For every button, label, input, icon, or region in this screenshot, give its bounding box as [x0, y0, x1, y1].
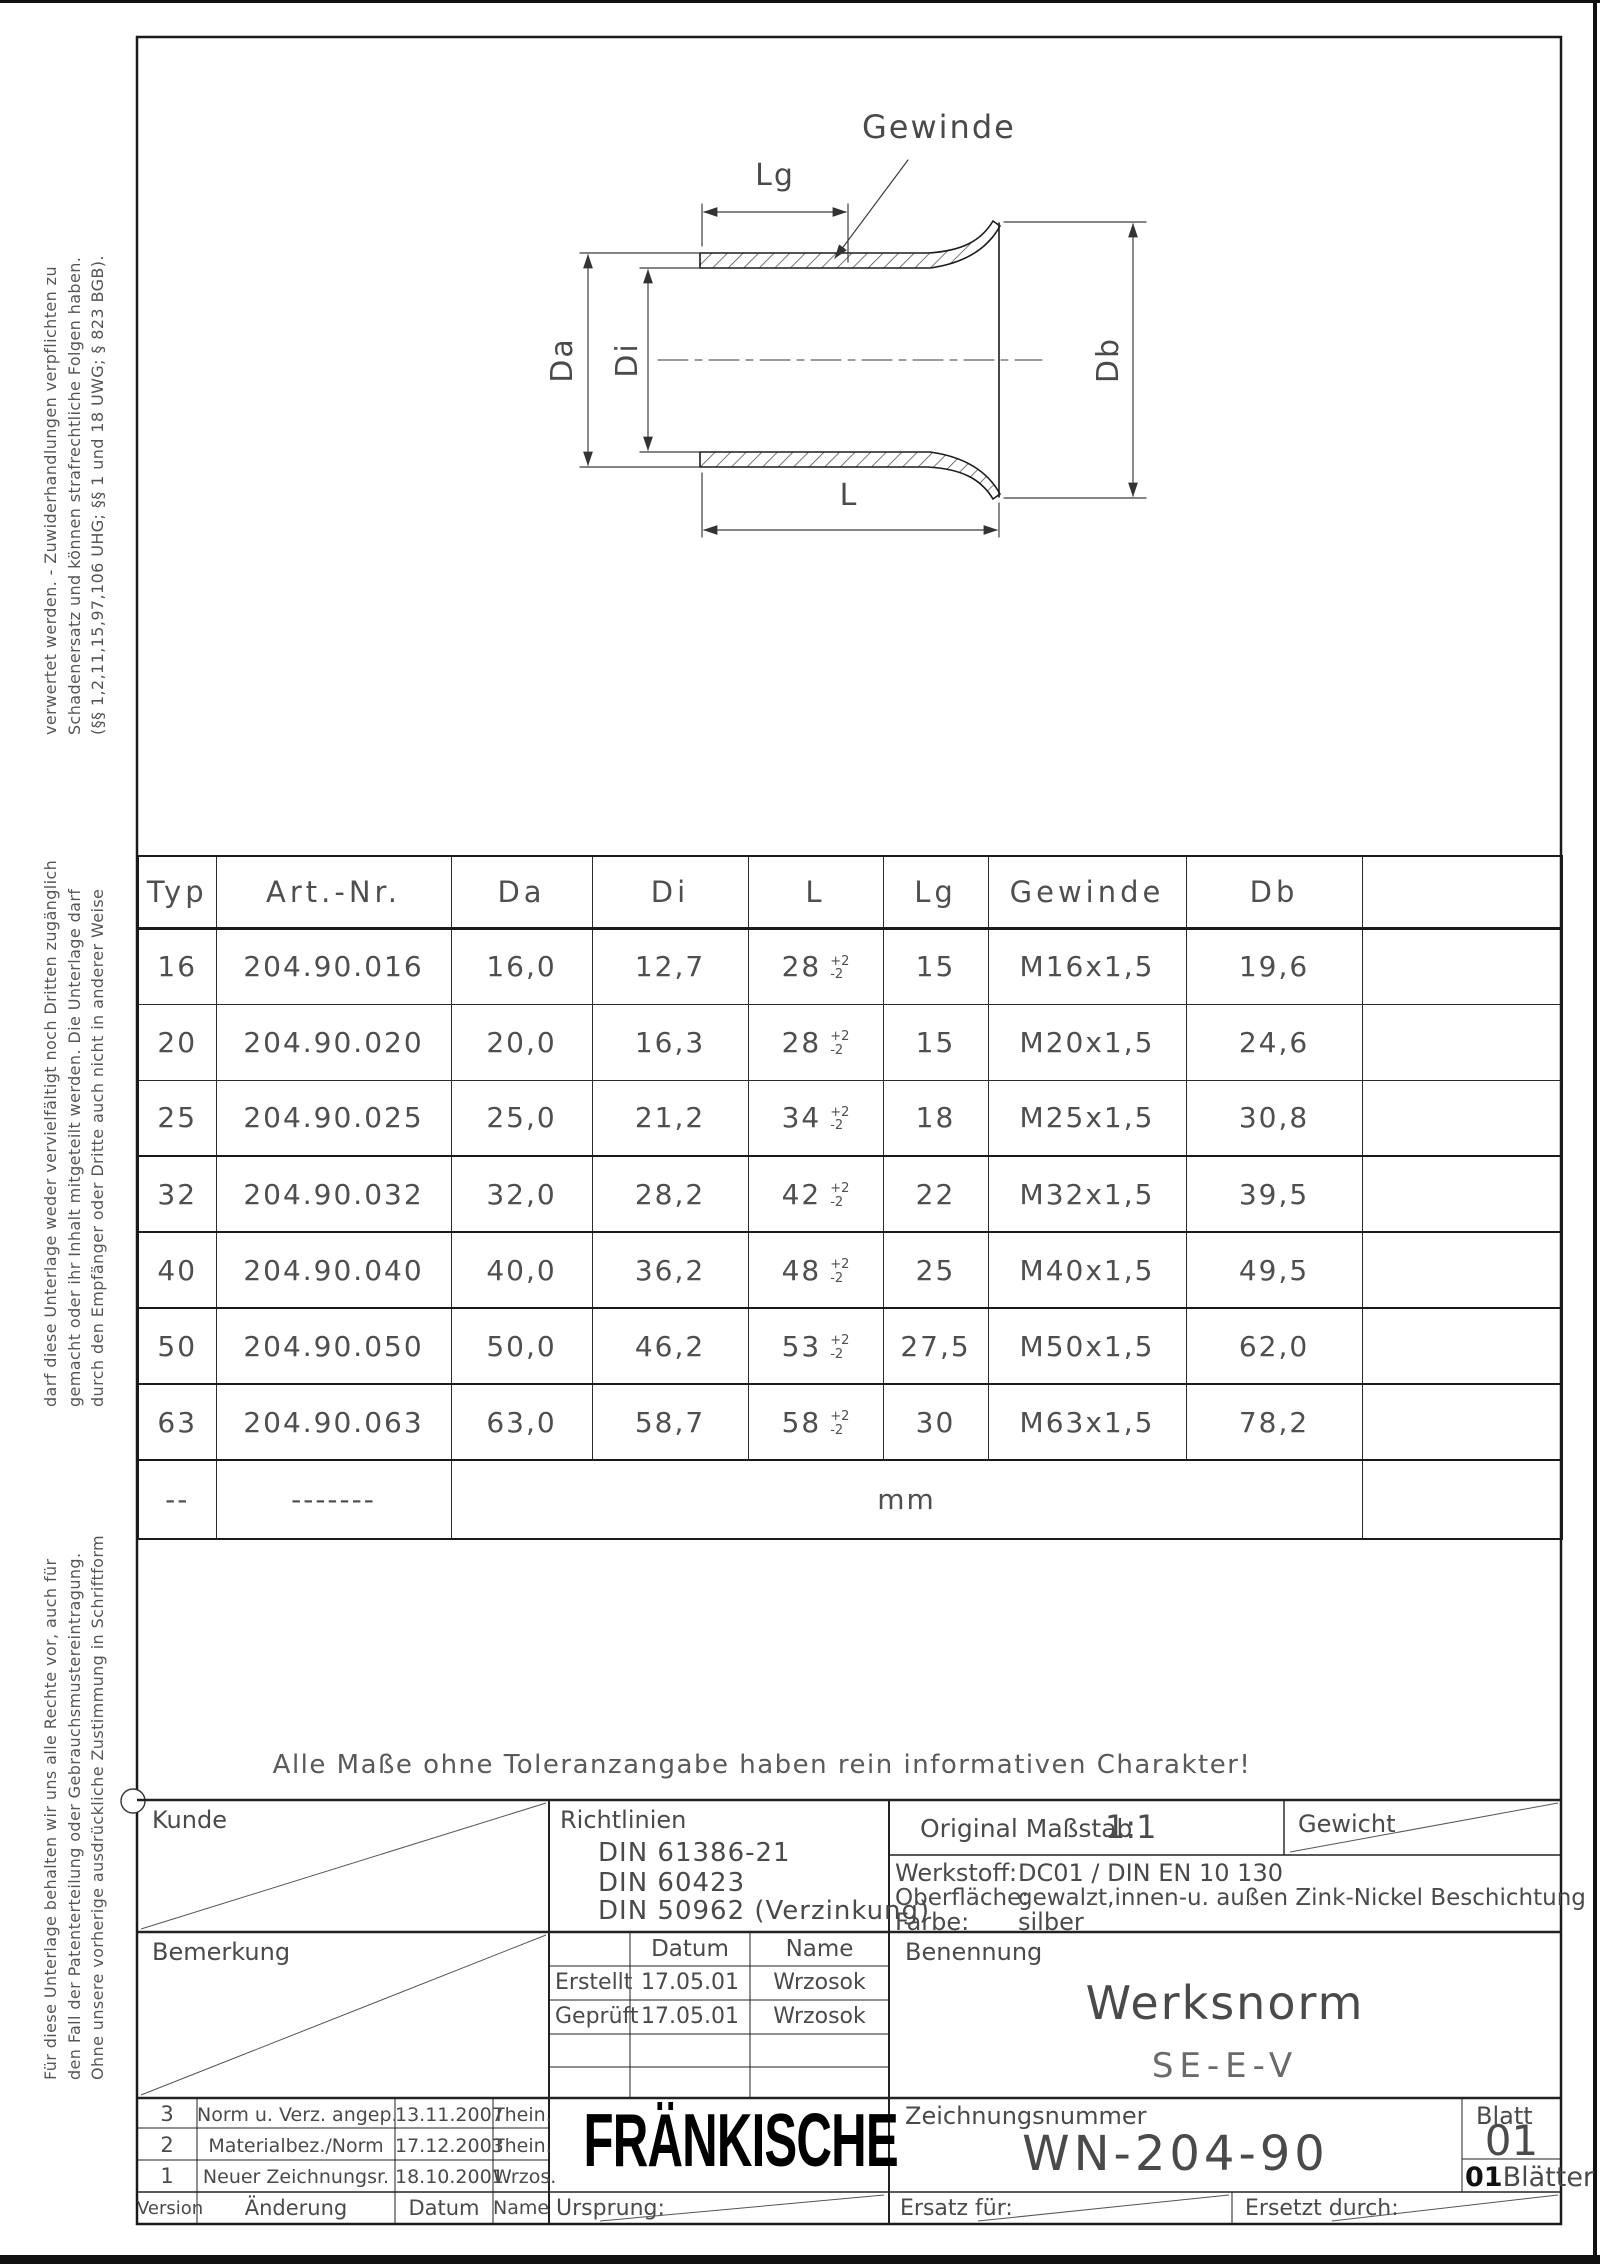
cell-typ: 32 — [138, 1156, 216, 1232]
cell-art-nr: 204.90.050 — [216, 1308, 451, 1384]
margin-note-line: durch den Empfänger oder Dritte auch nic… — [86, 827, 110, 1407]
revision-date: 17.12.2003 — [395, 2135, 493, 2157]
datum-footer-label: Datum — [395, 2196, 493, 2220]
blaetter-value: 01 — [1465, 2162, 1503, 2193]
cell-typ: 63 — [138, 1384, 216, 1460]
cell-lg: 18 — [883, 1080, 988, 1156]
revision-date: 18.10.2001 — [395, 2166, 493, 2188]
geprueft-datum: 17.05.01 — [630, 2004, 750, 2029]
ersatz-fuer-label: Ersatz für: — [900, 2196, 1013, 2221]
cell-da: 50,0 — [451, 1308, 592, 1384]
version-column-label: Version — [137, 2198, 197, 2219]
cell-typ: 25 — [138, 1080, 216, 1156]
cell-gewinde: M25x1,5 — [988, 1080, 1186, 1156]
blatt-value: 01 — [1462, 2116, 1561, 2165]
revision-name: Thein. — [493, 2104, 549, 2126]
cell-typ: 20 — [138, 1004, 216, 1080]
farbe-value: silber — [1018, 1908, 1084, 1936]
fraenkische-logo: FRÄNKISCHE — [549, 2106, 889, 2175]
revision-name: Thein. — [493, 2135, 549, 2157]
cell-lg: 15 — [883, 1004, 988, 1080]
erstellt-datum: 17.05.01 — [630, 1970, 750, 1995]
cell-blank — [1362, 928, 1562, 1004]
revision-date: 13.11.2007 — [395, 2104, 493, 2126]
erstellt-name: Wrzosok — [750, 1970, 889, 1995]
cell-art-nr: 204.90.020 — [216, 1004, 451, 1080]
revision-change: Neuer Zeichnungsr. — [197, 2166, 395, 2188]
col-header-da: Da — [451, 856, 592, 928]
cell-da: 40,0 — [451, 1232, 592, 1308]
cell-db: 62,0 — [1186, 1308, 1362, 1384]
cell-db: 39,5 — [1186, 1156, 1362, 1232]
cell-lg: 30 — [883, 1384, 988, 1460]
cell-blank — [1362, 1384, 1562, 1460]
ursprung-label: Ursprung: — [556, 2196, 665, 2221]
table-row: 25 204.90.025 25,0 21,2 34+2-2 18 M25x1,… — [138, 1080, 1562, 1156]
cell-di: 36,2 — [592, 1232, 748, 1308]
table-row: 63 204.90.063 63,0 58,7 58+2-2 30 M63x1,… — [138, 1384, 1562, 1460]
cell-art-nr: 204.90.025 — [216, 1080, 451, 1156]
cell-art-placeholder: ------- — [216, 1460, 451, 1539]
aenderung-column-label: Änderung — [197, 2196, 395, 2220]
cell-art-nr: 204.90.063 — [216, 1384, 451, 1460]
col-header-typ: Typ — [138, 856, 216, 928]
revision-version: 2 — [137, 2133, 197, 2157]
revision-version: 3 — [137, 2102, 197, 2126]
margin-note-line: verwertet werden. - Zuwiderhandlungen ve… — [39, 215, 63, 735]
cell-l: 28+2-2 — [748, 1004, 883, 1080]
name-footer-label: Name — [493, 2197, 549, 2219]
richtlinie-din-3: DIN 50962 (Verzinkung) — [598, 1896, 930, 1926]
table-row: 40 204.90.040 40,0 36,2 48+2-2 25 M40x1,… — [138, 1232, 1562, 1308]
cell-di: 16,3 — [592, 1004, 748, 1080]
cell-gewinde: M20x1,5 — [988, 1004, 1186, 1080]
revision-change: Norm u. Verz. angep. — [197, 2104, 395, 2126]
werkstoff-label: Werkstoff: — [895, 1859, 1017, 1887]
revision-change: Materialbez./Norm — [197, 2135, 395, 2157]
richtlinie-din-1: DIN 61386-21 — [598, 1838, 791, 1868]
cell-lg: 15 — [883, 928, 988, 1004]
geprueft-name: Wrzosok — [750, 2004, 889, 2029]
cell-da: 25,0 — [451, 1080, 592, 1156]
ersetzt-durch-label: Ersetzt durch: — [1245, 2196, 1399, 2221]
cell-gewinde: M50x1,5 — [988, 1308, 1186, 1384]
datum-column-label: Datum — [630, 1936, 750, 1962]
cell-db: 19,6 — [1186, 928, 1362, 1004]
margin-note-line: Ohne unsere vorherige ausdrückliche Zust… — [86, 1500, 110, 2080]
kunde-label: Kunde — [152, 1806, 227, 1834]
table-row: 20 204.90.020 20,0 16,3 28+2-2 15 M20x1,… — [138, 1004, 1562, 1080]
cell-blank — [1362, 1080, 1562, 1156]
margin-note-bottom: Für diese Unterlage behalten wir uns all… — [39, 1500, 131, 2080]
cell-di: 28,2 — [592, 1156, 748, 1232]
gewinde-leader-line — [835, 160, 908, 258]
revision-name: Wrzos. — [493, 2166, 549, 2188]
da-dimension-label: Da — [542, 330, 582, 390]
margin-note-line: den Fall der Patenterteilung oder Gebrau… — [63, 1500, 87, 2080]
margin-note-top: verwertet werden. - Zuwiderhandlungen ve… — [39, 215, 131, 735]
gewinde-label: Gewinde — [862, 108, 1016, 146]
cell-art-nr: 204.90.032 — [216, 1156, 451, 1232]
table-unit-row: -- ------- mm — [138, 1460, 1562, 1539]
col-header-lg: Lg — [883, 856, 988, 928]
benennung-title: Werksnorm — [889, 1976, 1561, 2030]
benennung-label: Benennung — [905, 1938, 1042, 1966]
gewicht-label: Gewicht — [1298, 1810, 1395, 1838]
benennung-subtitle: SE-E-V — [889, 2046, 1561, 2086]
cell-typ: 50 — [138, 1308, 216, 1384]
table-row: 16 204.90.016 16,0 12,7 28+2-2 15 M16x1,… — [138, 928, 1562, 1004]
margin-note-line: Für diese Unterlage behalten wir uns all… — [39, 1500, 63, 2080]
cell-l: 53+2-2 — [748, 1308, 883, 1384]
cell-l: 42+2-2 — [748, 1156, 883, 1232]
col-header-blank — [1362, 856, 1562, 928]
cell-l: 34+2-2 — [748, 1080, 883, 1156]
cell-di: 58,7 — [592, 1384, 748, 1460]
margin-note-line: Schadenersatz und können strafrechtliche… — [63, 215, 87, 735]
table-row: 50 204.90.050 50,0 46,2 53+2-2 27,5 M50x… — [138, 1308, 1562, 1384]
cell-da: 16,0 — [451, 928, 592, 1004]
cell-da: 32,0 — [451, 1156, 592, 1232]
cell-lg: 25 — [883, 1232, 988, 1308]
cell-da: 63,0 — [451, 1384, 592, 1460]
werkstoff-value: DC01 / DIN EN 10 130 — [1018, 1859, 1283, 1887]
cell-blank — [1362, 1232, 1562, 1308]
farbe-label: Farbe: — [895, 1908, 969, 1936]
drawing-sheet: verwertet werden. - Zuwiderhandlungen ve… — [0, 0, 1600, 2264]
col-header-gewinde: Gewinde — [988, 856, 1186, 928]
cell-art-nr: 204.90.040 — [216, 1232, 451, 1308]
margin-note-middle: darf diese Unterlage weder vervielfältig… — [39, 827, 131, 1407]
cell-blank — [1362, 1308, 1562, 1384]
cell-l: 48+2-2 — [748, 1232, 883, 1308]
cell-db: 24,6 — [1186, 1004, 1362, 1080]
di-dimension-label: Di — [607, 330, 647, 390]
massstab-label: Original Maßstab — [920, 1814, 1132, 1843]
cell-typ: 40 — [138, 1232, 216, 1308]
erstellt-label: Erstellt — [555, 1970, 632, 1995]
geprueft-label: Geprüft — [555, 2004, 639, 2029]
table-header-row: Typ Art.-Nr. Da Di L Lg Gewinde Db — [138, 856, 1562, 928]
richtlinie-din-2: DIN 60423 — [598, 1868, 745, 1898]
cell-di: 21,2 — [592, 1080, 748, 1156]
blaetter-count: 01Blätter — [1465, 2162, 1594, 2193]
db-dimension-label: Db — [1088, 330, 1128, 390]
l-dimension-label: L — [818, 478, 878, 513]
cell-db: 49,5 — [1186, 1232, 1362, 1308]
cell-lg: 27,5 — [883, 1308, 988, 1384]
col-header-art-nr: Art.-Nr. — [216, 856, 451, 928]
cell-typ: 16 — [138, 928, 216, 1004]
cell-di: 12,7 — [592, 928, 748, 1004]
cell-unit: mm — [451, 1460, 1362, 1539]
cell-gewinde: M16x1,5 — [988, 928, 1186, 1004]
cell-l: 28+2-2 — [748, 928, 883, 1004]
lg-dimension-label: Lg — [735, 158, 815, 193]
cell-gewinde: M40x1,5 — [988, 1232, 1186, 1308]
cell-db: 78,2 — [1186, 1384, 1362, 1460]
dimension-table: Typ Art.-Nr. Da Di L Lg Gewinde Db 16 20… — [137, 855, 1563, 1540]
cell-di: 46,2 — [592, 1308, 748, 1384]
name-column-label: Name — [750, 1936, 889, 1962]
revision-version: 1 — [137, 2164, 197, 2188]
margin-note-line: gemacht oder ihr Inhalt mitgeteilt werde… — [63, 827, 87, 1407]
oberflaeche-value: gewalzt,innen-u. außen Zink-Nickel Besch… — [1018, 1885, 1586, 1911]
cell-typ-placeholder: -- — [138, 1460, 216, 1539]
cell-da: 20,0 — [451, 1004, 592, 1080]
cell-db: 30,8 — [1186, 1080, 1362, 1156]
col-header-db: Db — [1186, 856, 1362, 928]
col-header-di: Di — [592, 856, 748, 928]
table-row: 32 204.90.032 32,0 28,2 42+2-2 22 M32x1,… — [138, 1156, 1562, 1232]
massstab-value: 1:1 — [1105, 1808, 1157, 1846]
cell-art-nr: 204.90.016 — [216, 928, 451, 1004]
cell-blank — [1362, 1156, 1562, 1232]
tolerance-note: Alle Maße ohne Toleranzangabe haben rein… — [262, 1750, 1262, 1780]
richtlinien-label: Richtlinien — [560, 1806, 686, 1834]
cell-blank — [1362, 1004, 1562, 1080]
zeichnungsnummer-value: WN-204-90 — [889, 2126, 1462, 2182]
margin-note-line: (§§ 1,2,11,15,97,106 UHG; §§ 1 und 18 UW… — [86, 215, 110, 735]
bemerkung-label: Bemerkung — [152, 1938, 290, 1966]
blaetter-label: Blätter — [1503, 2162, 1594, 2193]
col-header-l: L — [748, 856, 883, 928]
cell-l: 58+2-2 — [748, 1384, 883, 1460]
cell-blank — [1362, 1460, 1562, 1539]
cell-gewinde: M32x1,5 — [988, 1156, 1186, 1232]
margin-note-line: darf diese Unterlage weder vervielfältig… — [39, 827, 63, 1407]
cell-gewinde: M63x1,5 — [988, 1384, 1186, 1460]
cell-lg: 22 — [883, 1156, 988, 1232]
